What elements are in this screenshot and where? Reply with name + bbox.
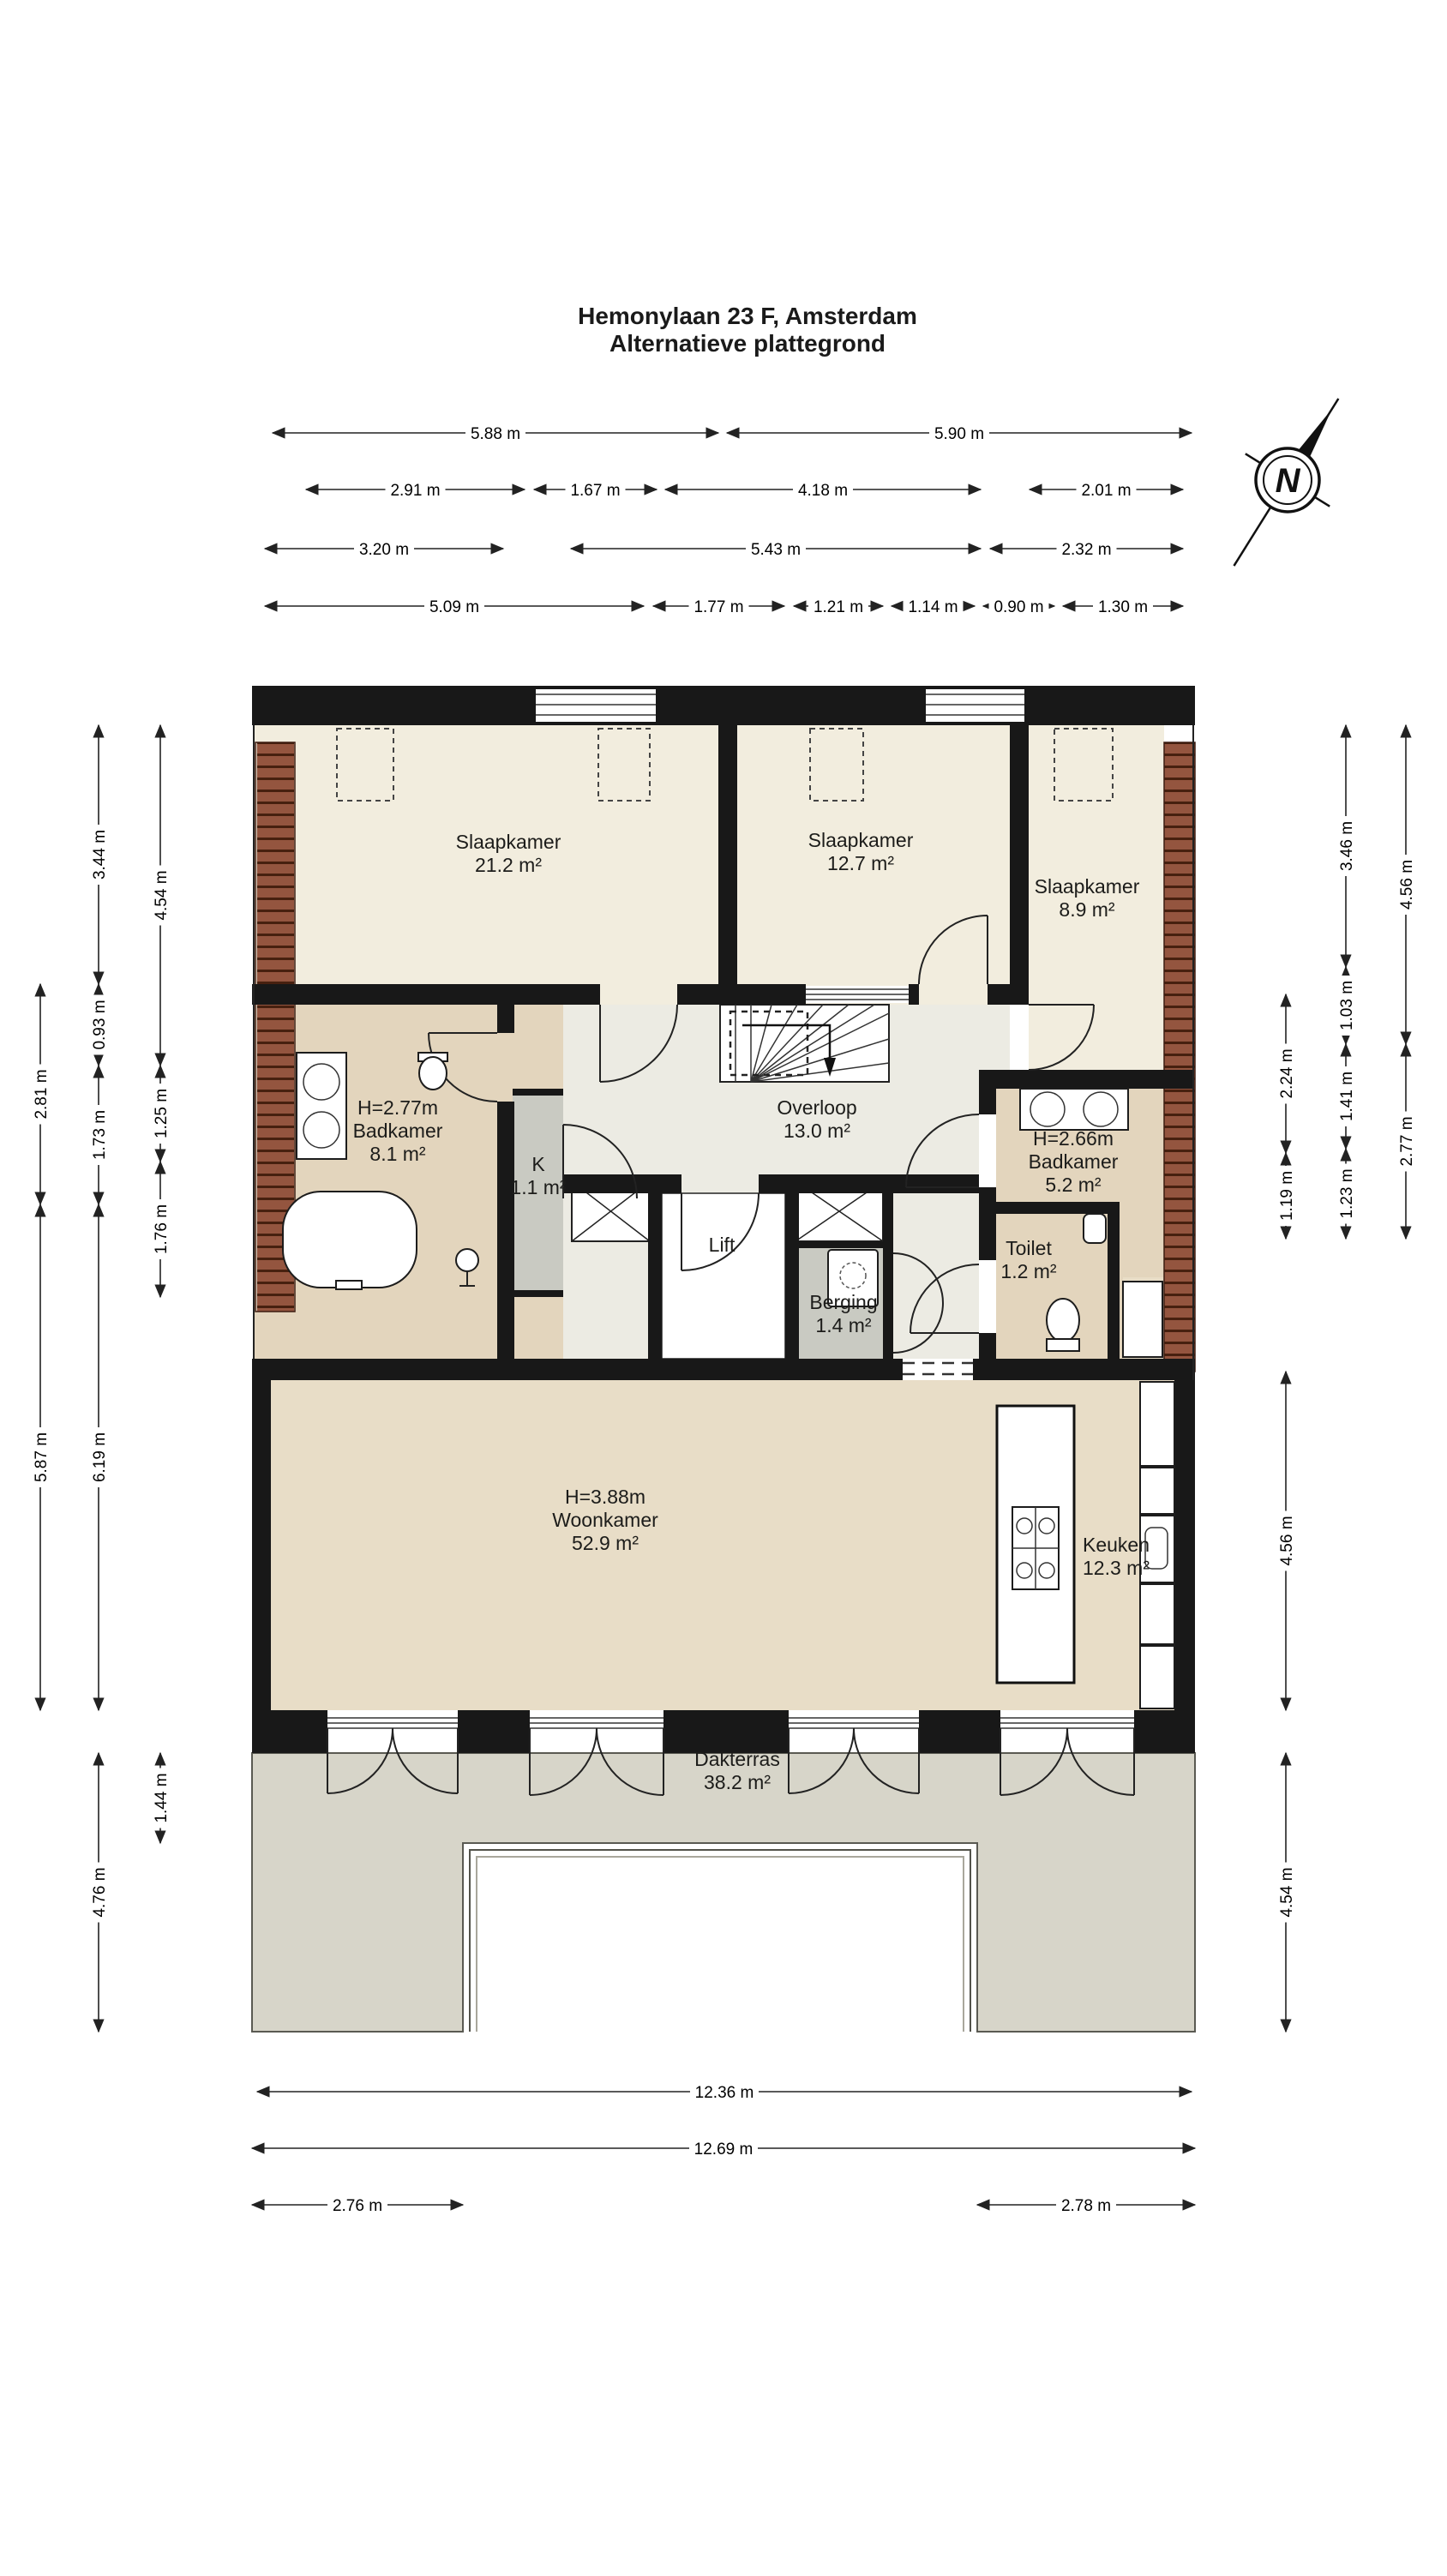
room-label-toilet: 1.2 m² <box>1000 1260 1057 1282</box>
dimension-label: 1.03 m <box>1338 981 1356 1030</box>
room-label-slaapkamer-2: 12.7 m² <box>827 852 894 874</box>
plan-title-line2: Alternatieve plattegrond <box>609 330 886 357</box>
window-top-1 <box>536 689 656 722</box>
bathtub-faucet <box>336 1281 362 1289</box>
dimension-label: 1.21 m <box>814 598 863 616</box>
dimension-label: 1.44 m <box>153 1773 171 1822</box>
room-label-badkamer-links: Badkamer <box>353 1120 443 1142</box>
room-label-toilet: Toilet <box>1006 1237 1052 1259</box>
room-overloop-arm <box>979 1005 1010 1070</box>
pedestal-sink <box>456 1249 478 1271</box>
bathtub <box>283 1192 417 1288</box>
room-label-berging: 1.4 m² <box>815 1314 872 1336</box>
dimension-label: 2.76 m <box>333 2197 382 2215</box>
dimension-label: 5.43 m <box>751 541 801 559</box>
dimension-label: 3.44 m <box>91 830 109 880</box>
opening-woonkamer <box>903 1359 973 1380</box>
dimension-label: 5.88 m <box>471 425 520 443</box>
dimension-label: 4.76 m <box>91 1867 109 1917</box>
kitchen-cabinet <box>1140 1646 1174 1708</box>
room-label-kast-k: 1.1 m² <box>510 1176 567 1198</box>
terrace-inner-border <box>470 1850 970 2032</box>
room-label-overloop: 13.0 m² <box>784 1120 850 1142</box>
dimension-label: 3.46 m <box>1338 821 1356 871</box>
terrace-inner-border2 <box>477 1857 964 2032</box>
dimension-label: 12.36 m <box>695 2084 754 2102</box>
dimension-label: 1.67 m <box>570 482 620 500</box>
dimension-label: 12.69 m <box>694 2141 754 2159</box>
dimension-label: 0.90 m <box>994 598 1043 616</box>
dimension-label: 2.81 m <box>33 1069 51 1119</box>
room-label-kast-k: K <box>531 1153 545 1175</box>
vanity-left <box>297 1053 346 1159</box>
roof-edge-right <box>1164 742 1195 1372</box>
kitchen-cabinet <box>1140 1468 1174 1514</box>
window-slaapkamer-2 <box>806 986 909 1003</box>
room-label-berging: Berging <box>809 1291 877 1313</box>
room-label-woonkamer: 52.9 m² <box>572 1532 639 1554</box>
dimension-label: 1.14 m <box>908 598 958 616</box>
dimension-label: 2.32 m <box>1061 541 1111 559</box>
plan-title-line1: Hemonylaan 23 F, Amsterdam <box>578 303 917 329</box>
room-slaapkamer-3 <box>1029 725 1164 1070</box>
toilet-tank <box>1047 1339 1079 1351</box>
dimension-label: 2.24 m <box>1278 1048 1296 1098</box>
room-label-lift: Lift <box>709 1234 736 1256</box>
lift-cabin <box>662 1193 785 1359</box>
dimension-label: 2.78 m <box>1061 2197 1111 2215</box>
room-label-badkamer-rechts: 5.2 m² <box>1045 1174 1102 1196</box>
dimension-label: 1.19 m <box>1278 1171 1296 1221</box>
toilet-handbasin <box>1084 1214 1106 1243</box>
kitchen-cabinet <box>1140 1584 1174 1644</box>
floorplan-canvas: Hemonylaan 23 F, Amsterdam Alternatieve … <box>0 0 1447 2572</box>
room-label-woonkamer: Woonkamer <box>552 1509 658 1531</box>
room-label-badkamer-links: H=2.77m <box>357 1096 438 1119</box>
dimension-label: 2.91 m <box>390 482 440 500</box>
dimension-label: 2.01 m <box>1081 482 1131 500</box>
room-label-keuken: Keuken <box>1083 1534 1150 1556</box>
room-label-badkamer-rechts: Badkamer <box>1029 1150 1119 1173</box>
room-label-slaapkamer-3: Slaapkamer <box>1035 875 1140 898</box>
dimension-label: 1.73 m <box>91 1110 109 1160</box>
kitchen-cabinet <box>1123 1282 1162 1357</box>
dimension-label: 0.93 m <box>91 1000 109 1049</box>
dimension-label: 5.09 m <box>429 598 479 616</box>
window-top-2 <box>926 689 1024 722</box>
room-label-slaapkamer-1: Slaapkamer <box>456 831 561 853</box>
dimension-label: 4.56 m <box>1398 860 1416 910</box>
dimension-label: 1.76 m <box>153 1204 171 1254</box>
floorplan-page: Hemonylaan 23 F, Amsterdam Alternatieve … <box>0 0 1447 2572</box>
dimension-label: 3.20 m <box>359 541 409 559</box>
room-label-dakterras: 38.2 m² <box>704 1771 771 1793</box>
dimension-label: 1.77 m <box>693 598 743 616</box>
dimension-label: 4.54 m <box>1278 1867 1296 1917</box>
toilet-bowl <box>1047 1299 1079 1342</box>
room-label-woonkamer: H=3.88m <box>565 1486 645 1508</box>
dimension-label: 4.54 m <box>153 870 171 920</box>
dimension-label: 1.23 m <box>1338 1168 1356 1218</box>
dimension-label: 6.19 m <box>91 1432 109 1482</box>
dimension-label: 4.56 m <box>1278 1516 1296 1565</box>
room-label-badkamer-rechts: H=2.66m <box>1033 1127 1114 1150</box>
dimension-label: 1.41 m <box>1338 1072 1356 1121</box>
compass: N <box>1192 372 1380 592</box>
stairs <box>720 1005 889 1082</box>
dimension-label: 1.25 m <box>153 1089 171 1138</box>
vanity-right <box>1020 1089 1128 1130</box>
compass-north-label: N <box>1276 462 1301 500</box>
room-label-slaapkamer-3: 8.9 m² <box>1059 898 1115 921</box>
toilet-bowl-left <box>419 1057 447 1090</box>
room-label-badkamer-links: 8.1 m² <box>369 1143 426 1165</box>
room-label-slaapkamer-2: Slaapkamer <box>808 829 914 851</box>
dimension-label: 4.18 m <box>798 482 848 500</box>
dimension-label: 1.30 m <box>1098 598 1148 616</box>
dimension-label: 5.87 m <box>33 1432 51 1482</box>
dimension-label: 5.90 m <box>934 425 984 443</box>
room-label-slaapkamer-1: 21.2 m² <box>475 854 542 876</box>
dimension-label: 2.77 m <box>1398 1116 1416 1166</box>
room-dakterras <box>252 1753 1195 2032</box>
room-label-overloop: Overloop <box>777 1096 856 1119</box>
plan-title: Hemonylaan 23 F, Amsterdam Alternatieve … <box>578 303 917 357</box>
room-label-keuken: 12.3 m² <box>1083 1557 1150 1579</box>
room-label-dakterras: Dakterras <box>694 1748 780 1770</box>
kitchen-cabinet <box>1140 1382 1174 1466</box>
